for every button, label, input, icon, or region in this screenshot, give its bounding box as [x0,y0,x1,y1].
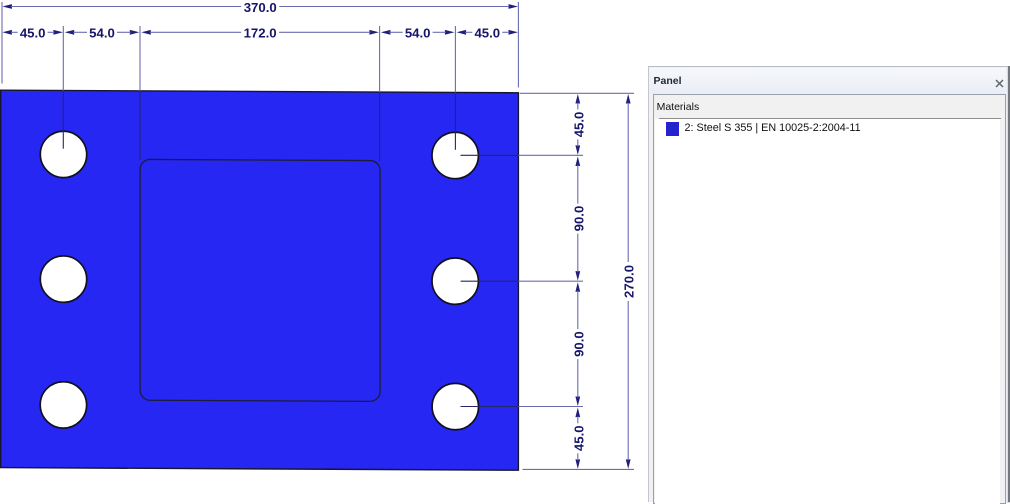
svg-text:54.0: 54.0 [405,26,431,41]
svg-text:270.0: 270.0 [622,265,637,298]
svg-text:90.0: 90.0 [571,331,586,357]
svg-text:172.0: 172.0 [244,26,277,41]
svg-text:45.0: 45.0 [571,112,586,138]
svg-text:45.0: 45.0 [571,425,586,451]
svg-text:90.0: 90.0 [571,206,586,232]
svg-text:370.0: 370.0 [244,0,277,15]
svg-text:54.0: 54.0 [89,26,115,41]
svg-text:45.0: 45.0 [20,26,46,41]
svg-text:45.0: 45.0 [474,26,500,41]
